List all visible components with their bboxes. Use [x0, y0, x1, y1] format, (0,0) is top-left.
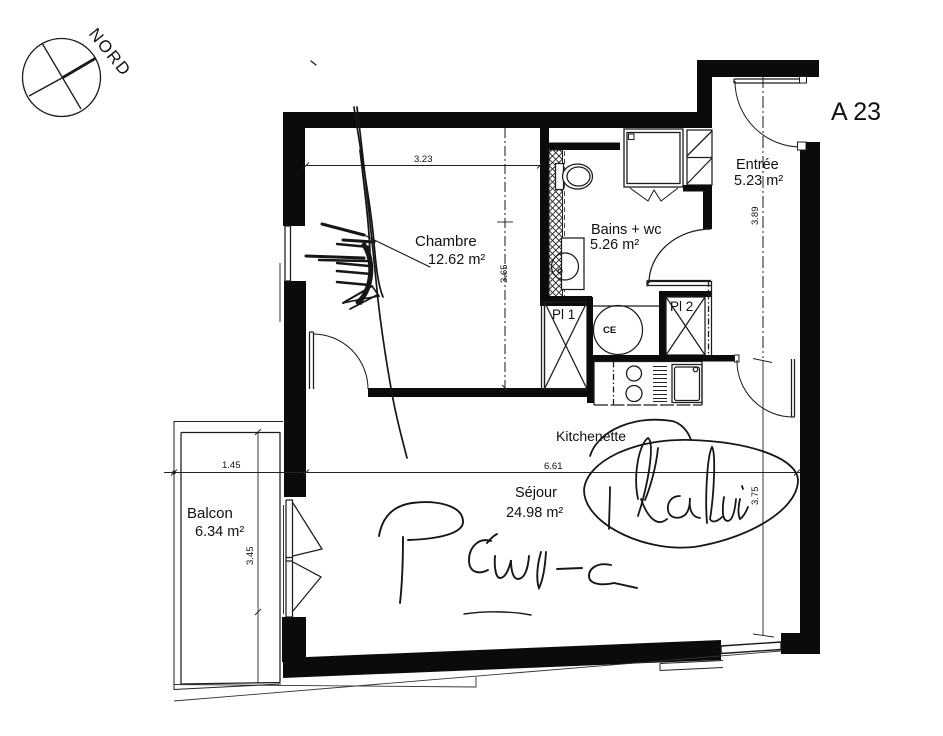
svg-text:A 23: A 23: [831, 98, 881, 126]
svg-text:5.26 m²: 5.26 m²: [590, 237, 639, 253]
svg-text:3.65: 3.65: [499, 265, 510, 284]
svg-text:3.23: 3.23: [414, 154, 433, 165]
svg-text:3.45: 3.45: [245, 547, 256, 566]
svg-text:Séjour: Séjour: [515, 485, 557, 501]
svg-text:Balcon: Balcon: [187, 505, 233, 522]
svg-text:12.62 m²: 12.62 m²: [428, 252, 485, 268]
svg-text:6.34 m²: 6.34 m²: [195, 524, 244, 540]
svg-text:5.23 m²: 5.23 m²: [734, 173, 783, 189]
svg-text:Pl 1: Pl 1: [552, 307, 575, 322]
svg-text:6.61: 6.61: [544, 461, 563, 472]
svg-text:24.98 m²: 24.98 m²: [506, 505, 563, 521]
svg-text:3.75: 3.75: [750, 487, 761, 506]
svg-text:3.89: 3.89: [750, 207, 761, 226]
svg-text:Pl 2: Pl 2: [670, 299, 693, 314]
svg-text:CE: CE: [603, 325, 616, 336]
svg-text:Entrée: Entrée: [736, 157, 779, 173]
svg-text:Bains + wc: Bains + wc: [591, 222, 662, 238]
svg-text:1.45: 1.45: [222, 460, 241, 471]
svg-text:Chambre: Chambre: [415, 233, 477, 250]
svg-text:Kitchenette: Kitchenette: [556, 428, 626, 444]
